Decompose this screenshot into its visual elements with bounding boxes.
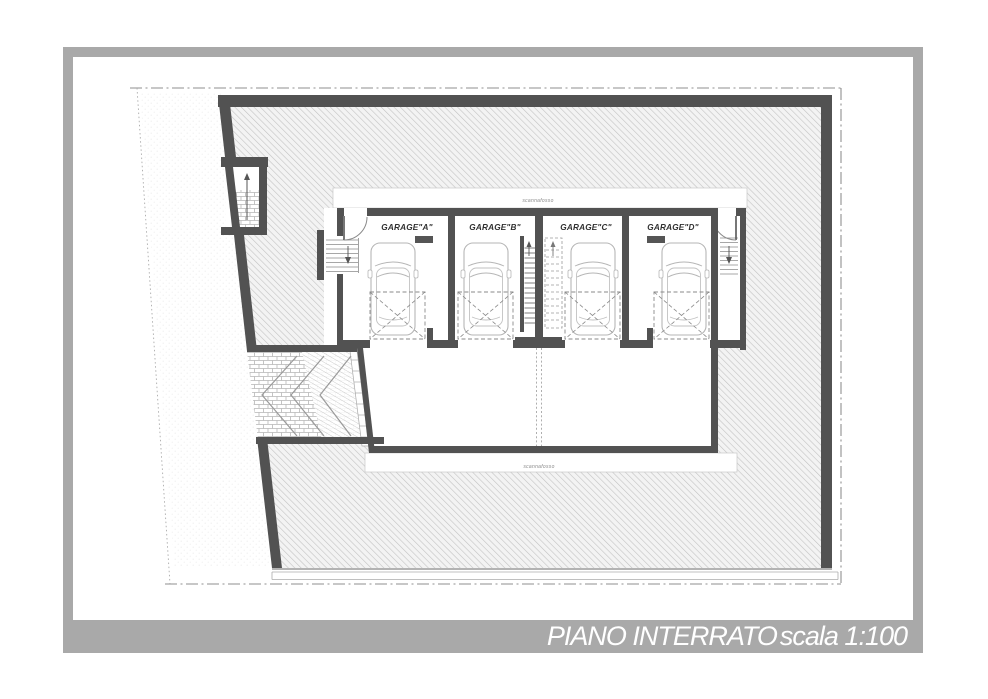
car-icon	[461, 243, 511, 335]
garage-b-label: GARAGE"B"	[469, 223, 520, 232]
driveway-court	[360, 348, 718, 453]
site-wall-north	[218, 95, 832, 107]
car-icon	[368, 243, 418, 335]
site-wall-east	[821, 95, 832, 568]
garage-a-label: GARAGE"A"	[381, 223, 432, 232]
car-icon	[568, 243, 618, 335]
plan-title: PIANO INTERRATOscala 1:100	[547, 621, 908, 651]
car-icon	[659, 243, 709, 335]
wall-divider-ab	[448, 216, 455, 342]
floor-plan-page: scannafosso scannafosso GARAGE"A" GARAGE…	[0, 0, 988, 699]
wall-central	[535, 208, 543, 344]
plan-title-name: PIANO INTERRATO	[547, 621, 778, 651]
garage-d-label: GARAGE"D"	[647, 223, 698, 232]
wall-divider-cd	[622, 216, 629, 342]
floor-plan-svg: scannafosso scannafosso GARAGE"A" GARAGE…	[0, 0, 988, 699]
moat-label-top: scannafosso	[522, 198, 553, 204]
garage-d-vent	[647, 236, 665, 243]
moat-label-bottom: scannafosso	[523, 464, 554, 470]
garage-a-vent	[415, 236, 433, 243]
garage-c-label: GARAGE"C"	[560, 223, 611, 232]
plan-title-scale: scala 1:100	[780, 621, 908, 651]
